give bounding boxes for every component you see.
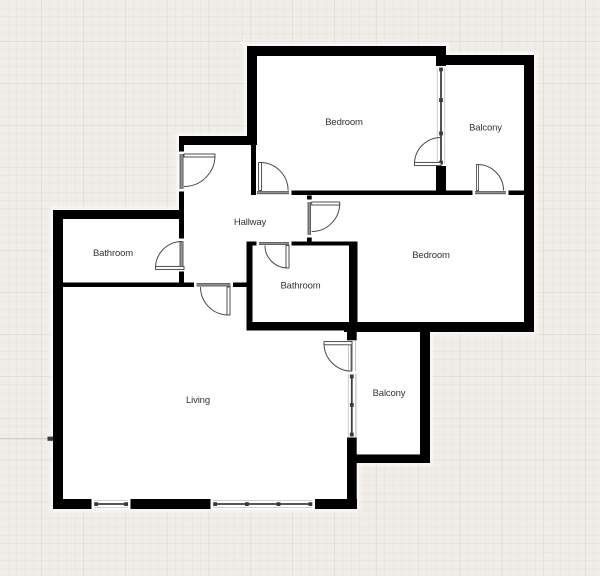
svg-text:Bedroom: Bedroom — [412, 250, 450, 261]
svg-text:Living: Living — [186, 395, 210, 406]
svg-text:Balcony: Balcony — [373, 388, 406, 399]
svg-text:Bathroom: Bathroom — [93, 248, 133, 259]
svg-text:Bedroom: Bedroom — [325, 117, 363, 128]
svg-text:Hallway: Hallway — [234, 217, 267, 228]
svg-text:Bathroom: Bathroom — [281, 281, 321, 292]
svg-text:Balcony: Balcony — [469, 123, 502, 134]
